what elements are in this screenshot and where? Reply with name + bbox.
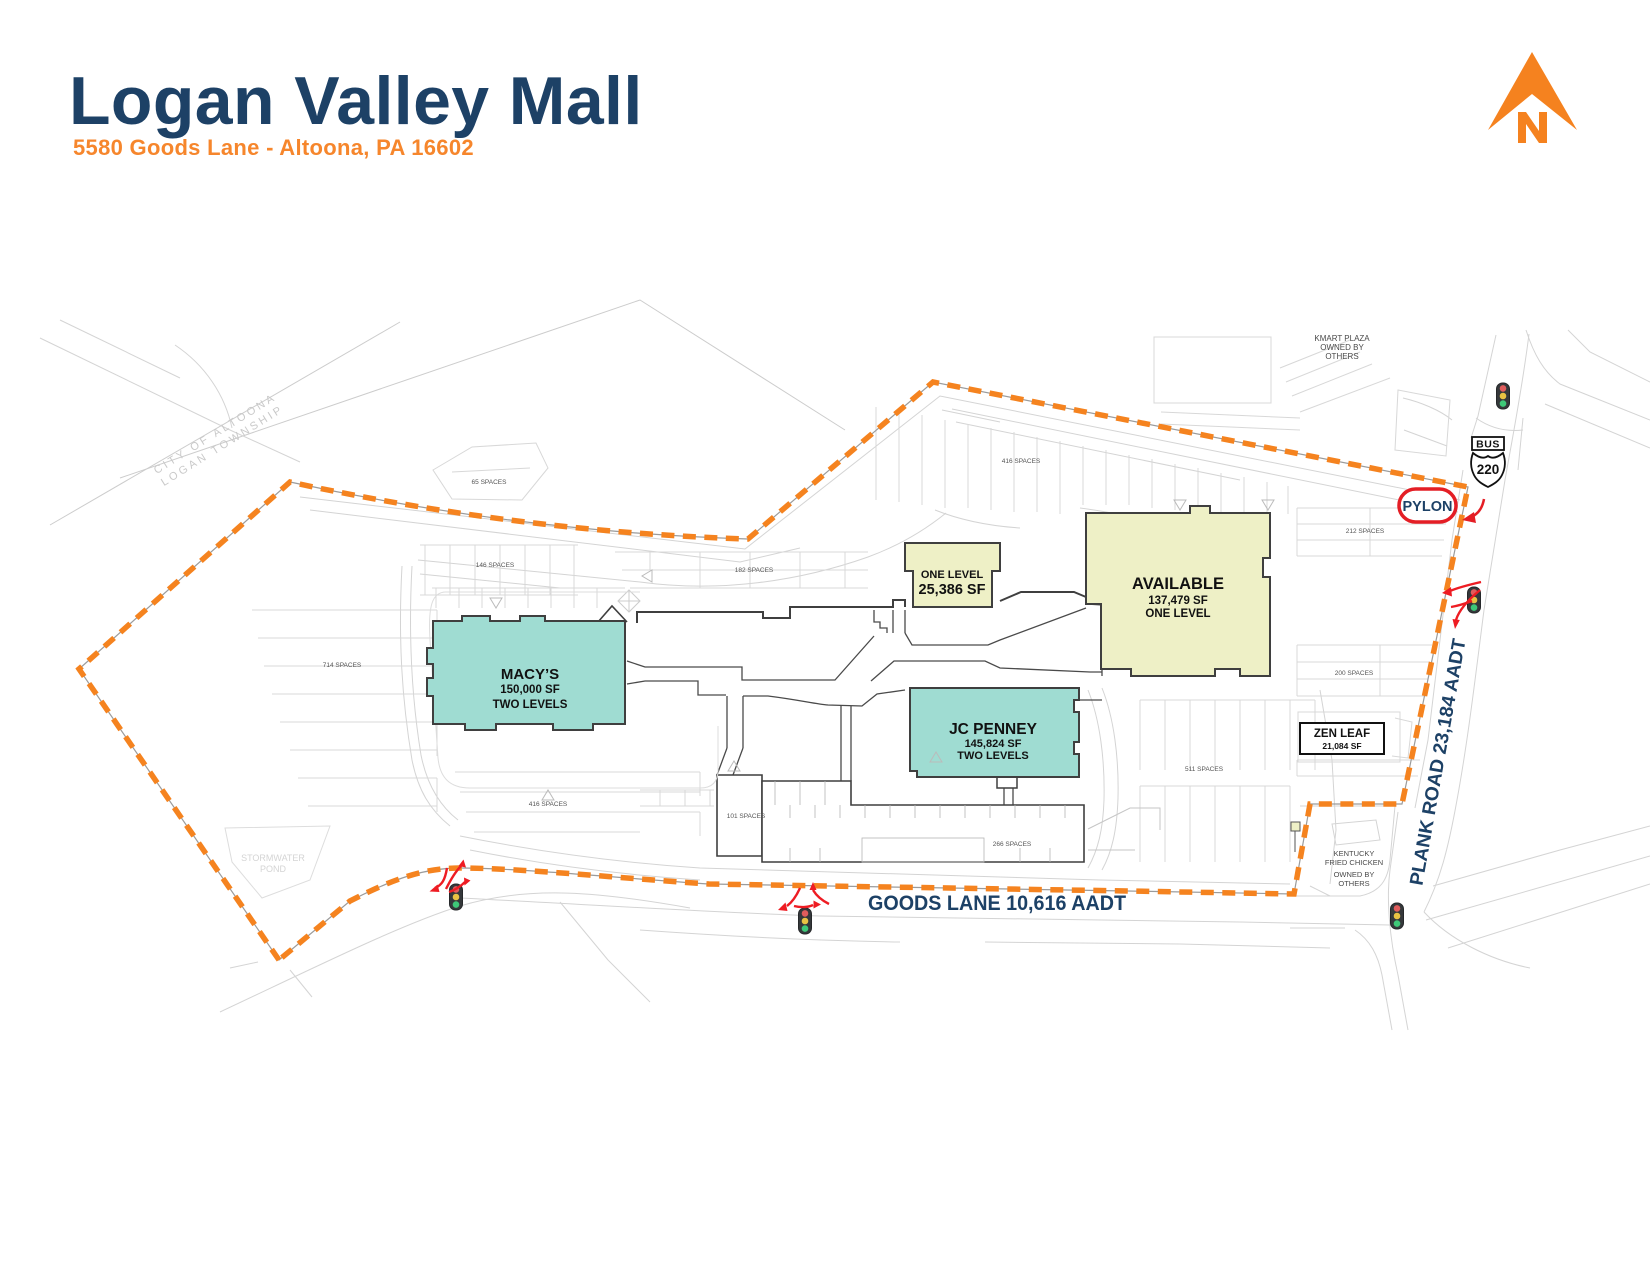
svg-text:137,479 SF: 137,479 SF [1148,595,1207,607]
svg-text:POND: POND [260,864,287,874]
svg-text:200 SPACES: 200 SPACES [1335,670,1374,677]
svg-text:OWNED BY: OWNED BY [1320,343,1364,352]
svg-text:212 SPACES: 212 SPACES [1346,528,1385,535]
svg-text:266 SPACES: 266 SPACES [993,841,1032,848]
svg-text:BUS: BUS [1476,439,1500,451]
svg-text:OTHERS: OTHERS [1338,879,1369,888]
svg-text:FRIED CHICKEN: FRIED CHICKEN [1325,858,1383,867]
svg-text:ZEN LEAF: ZEN LEAF [1314,728,1370,740]
svg-text:416 SPACES: 416 SPACES [529,801,568,808]
svg-text:ONE LEVEL: ONE LEVEL [921,569,984,581]
svg-text:511 SPACES: 511 SPACES [1185,766,1224,773]
svg-text:416 SPACES: 416 SPACES [1002,458,1041,465]
svg-text:JC PENNEY: JC PENNEY [949,721,1038,738]
svg-text:182 SPACES: 182 SPACES [735,567,774,574]
svg-text:CITY OF ALTOONA: CITY OF ALTOONA [152,391,279,477]
svg-text:GOODS LANE 10,616 AADT: GOODS LANE 10,616 AADT [868,892,1126,915]
svg-text:LOGAN TOWNSHIP: LOGAN TOWNSHIP [159,403,286,489]
svg-text:25,386 SF: 25,386 SF [919,582,986,598]
svg-text:220: 220 [1477,462,1500,477]
svg-text:PYLON: PYLON [1403,499,1453,515]
svg-text:PLANK ROAD 23,184 AADT: PLANK ROAD 23,184 AADT [1406,637,1470,887]
svg-text:714 SPACES: 714 SPACES [323,662,362,669]
svg-text:OWNED BY: OWNED BY [1334,870,1375,879]
svg-text:AVAILABLE: AVAILABLE [1132,575,1224,593]
svg-text:OTHERS: OTHERS [1325,352,1358,361]
svg-text:TWO LEVELS: TWO LEVELS [493,699,568,711]
svg-text:KMART PLAZA: KMART PLAZA [1314,334,1370,343]
svg-text:ONE LEVEL: ONE LEVEL [1145,608,1210,620]
svg-text:KENTUCKY: KENTUCKY [1334,849,1375,858]
svg-text:145,824 SF: 145,824 SF [965,738,1022,750]
svg-text:STORMWATER: STORMWATER [241,853,305,863]
svg-text:101 SPACES: 101 SPACES [727,813,766,820]
svg-text:21,084 SF: 21,084 SF [1322,741,1361,751]
svg-text:65 SPACES: 65 SPACES [472,479,508,486]
svg-text:MACY’S: MACY’S [501,666,559,683]
svg-text:TWO LEVELS: TWO LEVELS [957,750,1029,762]
svg-text:146 SPACES: 146 SPACES [476,562,515,569]
svg-text:150,000 SF: 150,000 SF [500,684,559,696]
